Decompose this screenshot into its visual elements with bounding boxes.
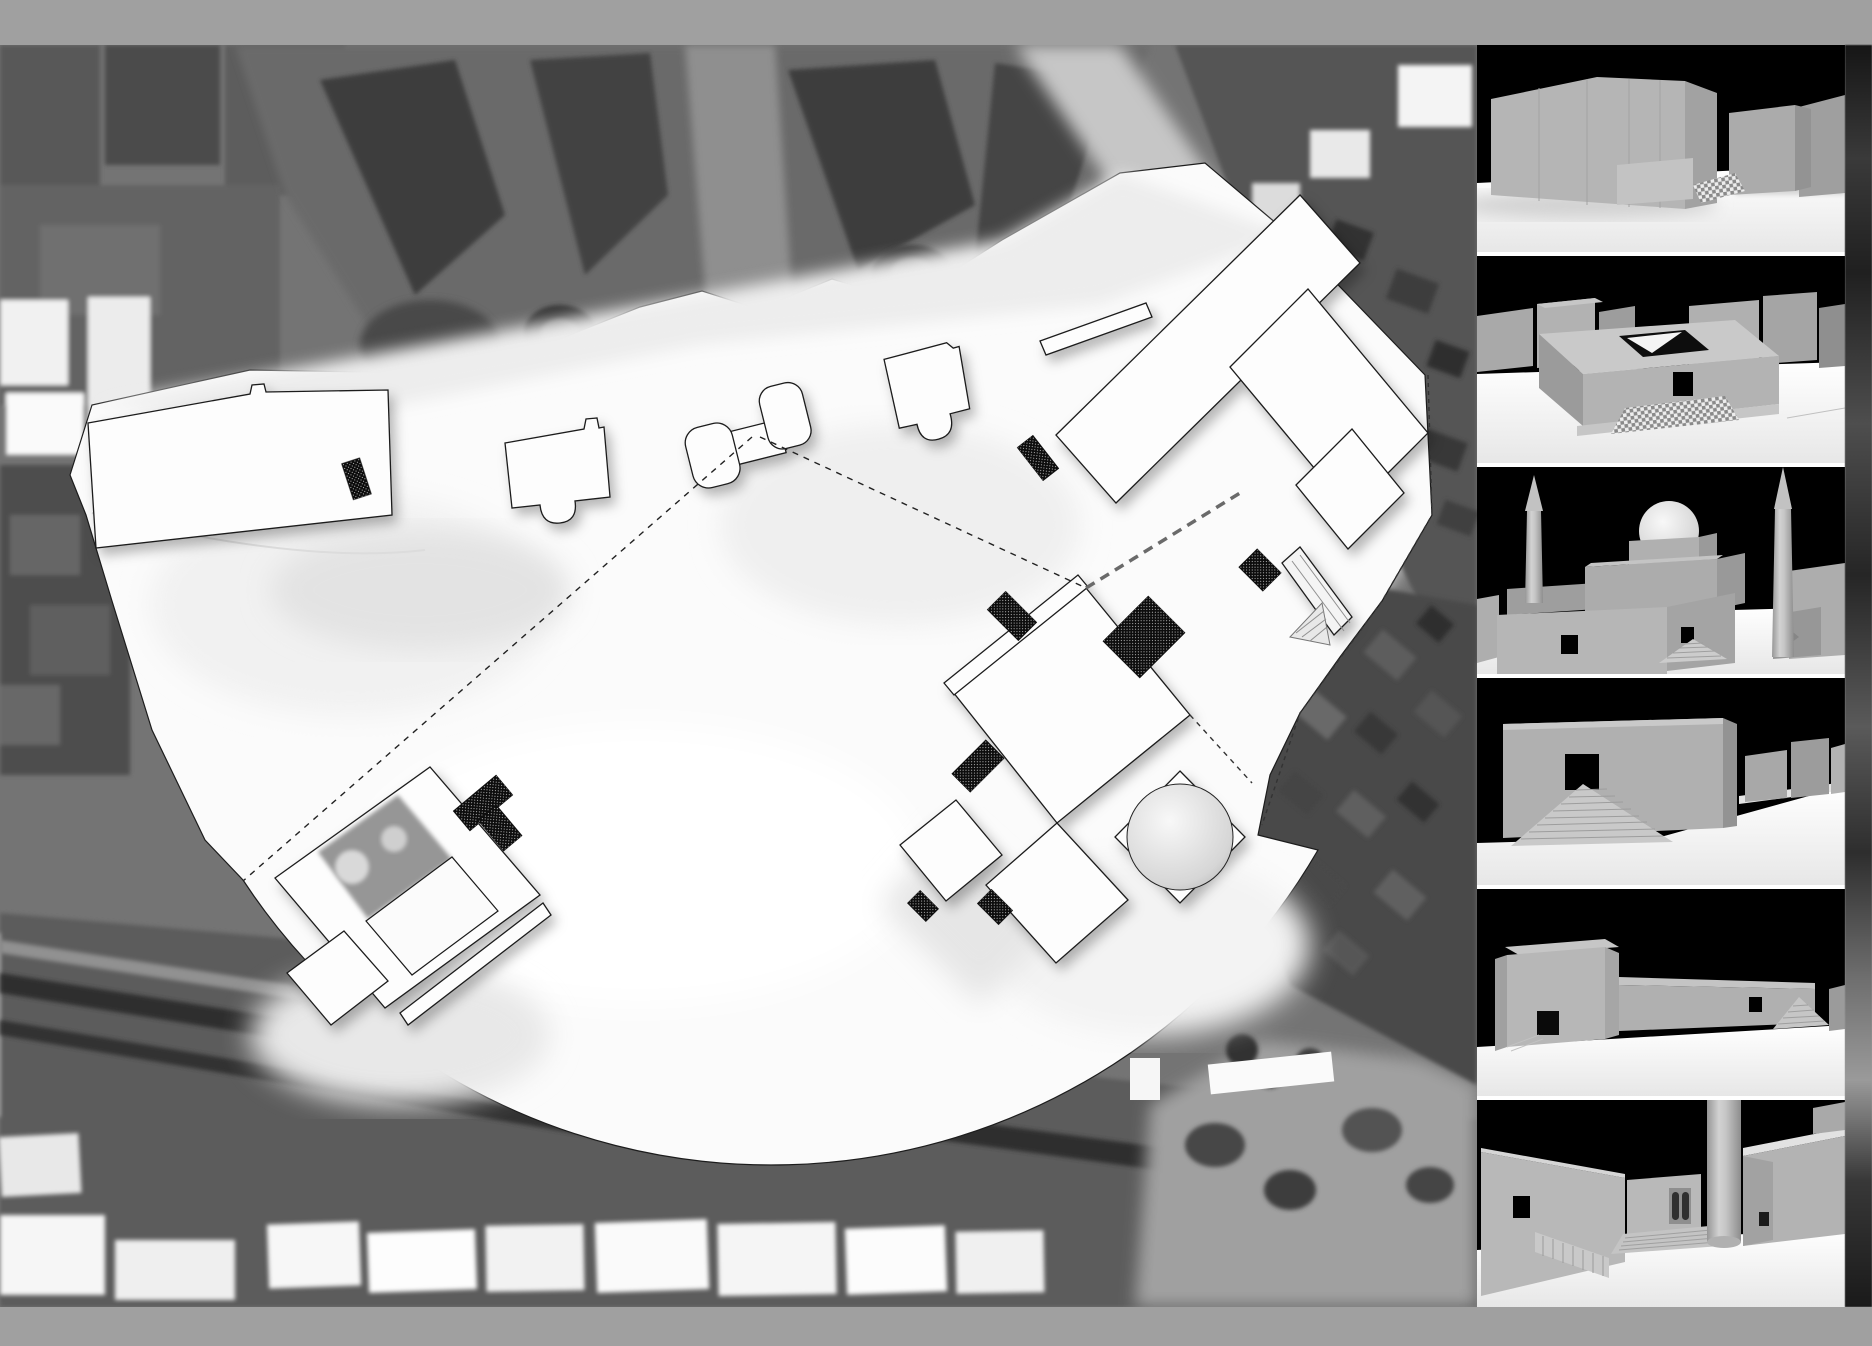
court-left-wall (1481, 1148, 1625, 1296)
frame-bottom-bar (0, 1307, 1872, 1346)
site-plan-drawing (0, 45, 1477, 1307)
render-5 (1477, 889, 1845, 1096)
plaza-fragment (1130, 1058, 1160, 1100)
aerial-site-plan (0, 45, 1477, 1307)
render-6 (1477, 1100, 1845, 1307)
render-3 (1477, 467, 1845, 674)
court-column (1707, 1100, 1741, 1248)
detached-box (1495, 939, 1619, 1051)
render-1 (1477, 45, 1845, 252)
dome-circle (1127, 784, 1233, 890)
page-edge-strip (1845, 45, 1872, 1307)
render-thumbnail-column (1477, 45, 1845, 1307)
render-thumbnail-5 (1477, 889, 1845, 1096)
frame-top-bar (0, 0, 1872, 45)
render-4 (1477, 678, 1845, 885)
presentation-board (0, 0, 1872, 1346)
render-thumbnail-2 (1477, 256, 1845, 463)
render-2 (1477, 256, 1845, 463)
render-thumbnail-4 (1477, 678, 1845, 885)
render-thumbnail-3 (1477, 467, 1845, 674)
render-thumbnail-6 (1477, 1100, 1845, 1307)
render-thumbnail-1 (1477, 45, 1845, 252)
